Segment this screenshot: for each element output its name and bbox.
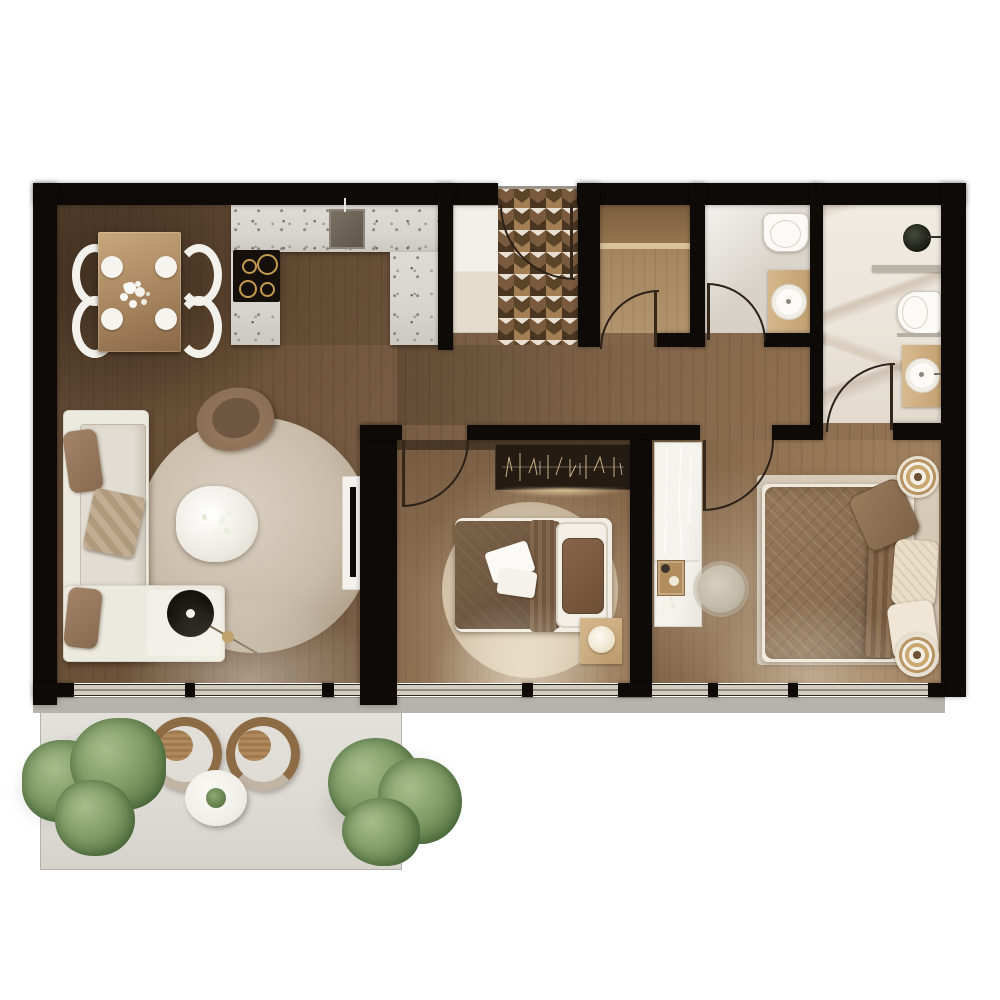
kitchen-faucet: [344, 198, 346, 212]
wall-art-bedroom1: [495, 444, 632, 490]
burner-icon: [257, 254, 278, 275]
window-sill-strip: [33, 697, 945, 713]
window: [798, 684, 928, 696]
window: [718, 684, 788, 696]
bush-plant-right: [342, 798, 420, 866]
wall-left: [33, 183, 57, 705]
place-setting: [101, 308, 123, 330]
floor-lamp-bulb: [186, 609, 195, 618]
nightstand-lamp: [588, 626, 615, 653]
tray-dish: [669, 576, 679, 586]
closet-door-leaf: [654, 290, 657, 347]
wall-top-right: [577, 183, 966, 205]
master-pillow-cream: [891, 539, 939, 608]
window: [533, 684, 618, 696]
place-setting: [155, 308, 177, 330]
window: [334, 684, 360, 696]
art-squiggles: [496, 445, 631, 489]
bed1-towels: [496, 567, 537, 598]
bath-round-basin: [903, 224, 931, 252]
floor-lamp-joint: [222, 631, 234, 643]
sofa-pillow: [63, 586, 103, 649]
balcony-chair-seat: [238, 730, 271, 761]
wall-kitchen-hall: [438, 183, 453, 350]
bath-toilet-bowl: [902, 296, 928, 329]
window: [652, 684, 708, 696]
floor-plan-canvas: [0, 0, 1000, 1000]
wc-door-leaf: [707, 283, 710, 340]
wall-wc-bath: [810, 183, 823, 437]
coffee-table-flowers: [206, 508, 220, 522]
wall-closet-wc: [690, 183, 705, 347]
closet-shelf-edge: [600, 243, 690, 249]
bath-toilet-ledge: [897, 333, 941, 337]
place-setting: [101, 256, 123, 278]
kitchen-counter-right: [390, 252, 440, 345]
tv-screen: [350, 487, 356, 577]
wall-corridor-bottom-a: [360, 425, 402, 440]
place-setting: [155, 256, 177, 278]
window: [74, 684, 185, 696]
wall-hall-closet: [578, 183, 600, 347]
wall-corridor-top-a: [657, 333, 705, 347]
closet-shelf: [600, 205, 690, 245]
side-table-bottom: [895, 633, 939, 677]
coffee-table: [176, 486, 258, 562]
wall-bottom-pier: [33, 683, 74, 697]
wc-toilet-bowl: [770, 220, 801, 248]
tall-cabinet: [453, 205, 498, 333]
dining-chair: [176, 296, 222, 358]
bath-sink-faucet: [934, 373, 941, 375]
balcony-table-plant: [206, 788, 226, 808]
bath-partition-shelf: [872, 265, 941, 272]
wall-bath-bottom: [893, 423, 941, 440]
master-door-leaf: [703, 440, 706, 509]
bush-plant-left: [55, 780, 135, 856]
wall-living-bedroom1: [360, 425, 397, 705]
window: [397, 684, 522, 696]
wall-corridor-top-b: [764, 333, 823, 347]
wall-right: [941, 183, 966, 697]
dresser-flower: [662, 598, 672, 608]
wall-bedroom1-master: [630, 440, 652, 683]
bath-sink-drain: [919, 372, 924, 377]
bed1-pillow-brown: [562, 538, 604, 614]
wall-bottom-pier: [522, 683, 533, 697]
wall-corridor-bottom-b: [467, 425, 700, 440]
side-table-top: [897, 456, 939, 498]
wall-corridor-bottom-c: [772, 425, 823, 440]
wall-bottom-pier: [788, 683, 798, 697]
master-pouf: [697, 565, 745, 613]
wc-sink-drain: [786, 299, 791, 304]
bathroom-door-leaf: [890, 363, 893, 430]
wall-bottom-pier: [618, 683, 652, 697]
basin-spout: [927, 236, 941, 238]
kitchen-sink: [329, 209, 365, 249]
entry-door-leaf: [570, 205, 573, 278]
tray-candle: [661, 564, 670, 573]
window: [195, 684, 322, 696]
wall-top-left: [33, 183, 498, 205]
flower-centerpiece: [124, 282, 136, 294]
burner-icon: [239, 280, 257, 298]
bedroom1-door-leaf: [402, 440, 405, 505]
floor-lamp-base: [287, 672, 295, 680]
dining-table: [98, 232, 181, 352]
master-dresser: [654, 442, 702, 627]
wall-bottom-pier: [708, 683, 718, 697]
glass-reflections: [655, 443, 699, 563]
wall-bottom-pier: [928, 683, 941, 697]
burner-icon: [260, 282, 275, 297]
entry-threshold: [498, 186, 578, 189]
burner-icon: [242, 259, 257, 274]
wall-bottom-pier: [322, 683, 334, 697]
wall-bottom-pier: [185, 683, 195, 697]
